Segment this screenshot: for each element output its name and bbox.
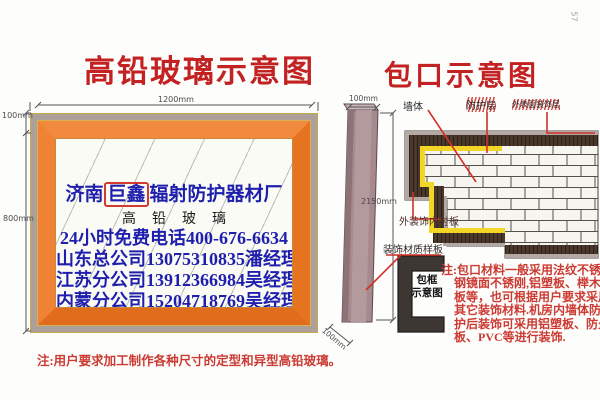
schematic-sheet: 高铅玻璃示意图 包口示意图 济南巨鑫辐射防护器材厂 高铅玻璃 24小时免费电话4… — [0, 0, 600, 400]
wall-label: 墙体 — [403, 98, 423, 113]
outer-gray-layer-right — [505, 254, 598, 258]
brick-wall-body — [405, 131, 598, 258]
right-note: 注:包口材料一般采用法纹不锈钢镜面不锈刚,铝塑板、榉木板等，也可根据用户要求采用… — [441, 264, 600, 344]
company-suffix: 辐射防护器材厂 — [150, 184, 283, 205]
company-name: 济南巨鑫辐射防护器材厂 — [56, 179, 292, 206]
right-diagram-title: 包口示意图 — [384, 54, 539, 94]
frame-gold-trim: 济南巨鑫辐射防护器材厂 高铅玻璃 24小时免费电话400-676-6634 山东… — [37, 120, 311, 326]
profile-front-face — [342, 110, 378, 322]
outer-decor-layer-label: 外表面装饰层 — [512, 99, 560, 110]
contact-shandong: 山东总公司13075310835潘经理 — [56, 249, 292, 270]
vertical-profile — [342, 104, 378, 322]
profile-top-cap — [344, 104, 378, 110]
page-number: 57 — [570, 11, 579, 21]
product-name: 高铅玻璃 — [56, 208, 292, 228]
frame-orange-border: 济南巨鑫辐射防护器材厂 高铅玻璃 24小时免费电话400-676-6634 山东… — [38, 121, 310, 325]
protective-layer-label: 防护层 — [466, 97, 496, 112]
dim-left-800: 800mm — [3, 214, 34, 223]
company-prefix: 济南 — [65, 184, 103, 205]
profile-face-highlight — [351, 110, 372, 322]
left-diagram-title: 高铅玻璃示意图 — [84, 46, 315, 91]
dim-left-100: 100mm — [2, 111, 33, 120]
inner-lining-label: 外装饰内衬板 — [399, 213, 459, 228]
company-boxed-chars: 巨鑫 — [104, 182, 148, 207]
lead-glass-frame: 济南巨鑫辐射防护器材厂 高铅玻璃 24小时免费电话400-676-6634 山东… — [30, 113, 318, 333]
left-note: 注:用户要求加工制作各种尺寸的定型和异型高铅玻璃。 — [37, 350, 341, 369]
contact-neimeng: 内蒙分公司15204718769吴经理 — [56, 291, 292, 307]
dim-profile-bottom-100: 100mm — [320, 326, 348, 351]
leader-wall — [428, 110, 476, 182]
protective-layer-band-right — [505, 245, 598, 254]
right-dimension-lines — [327, 104, 396, 346]
dim-profile-top-100: 100mm — [349, 94, 378, 103]
leader-outer-decor — [547, 112, 595, 133]
dim-width-1200: 1200mm — [158, 95, 194, 104]
hotline-text: 24小时免费电话400-676-6634 — [56, 228, 292, 249]
dim-profile-height-2150: 2150mm — [361, 197, 397, 206]
profile-left-edge — [342, 110, 354, 322]
glass-pane: 济南巨鑫辐射防护器材厂 高铅玻璃 24小时免费电话400-676-6634 山东… — [56, 139, 292, 307]
wall-cross-section — [405, 131, 598, 258]
contact-jiangsu: 江苏分公司13912366984吴经理 — [56, 270, 292, 291]
material-sample-label: 装饰材质样板 — [383, 241, 443, 256]
